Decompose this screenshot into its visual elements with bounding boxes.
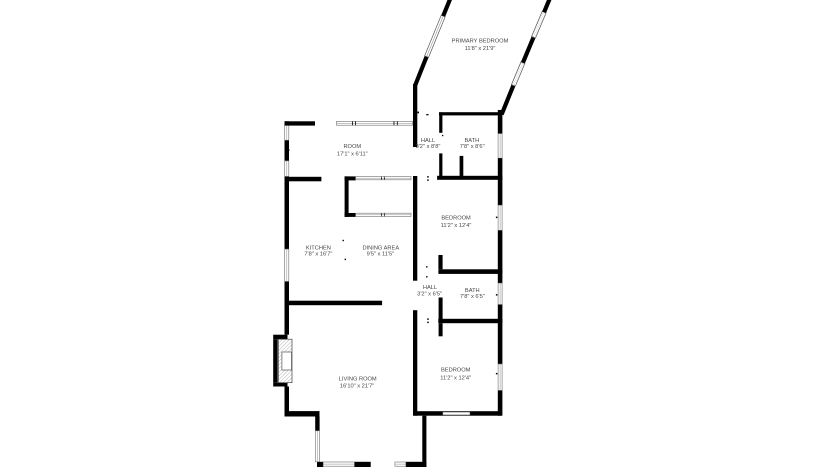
svg-text:KITCHEN: KITCHEN [306, 245, 331, 251]
svg-text:11'8" x 21'9": 11'8" x 21'9" [465, 46, 496, 52]
svg-text:BATH: BATH [465, 138, 480, 144]
svg-text:7'8" x 6'5": 7'8" x 6'5" [460, 294, 485, 300]
svg-text:7'8" x 8'6": 7'8" x 8'6" [460, 144, 485, 150]
svg-text:9'5" x 11'5": 9'5" x 11'5" [367, 252, 395, 258]
svg-text:HALL: HALL [423, 285, 437, 291]
svg-text:11'2" x 12'4": 11'2" x 12'4" [441, 223, 472, 229]
svg-text:3'2" x 6'5": 3'2" x 6'5" [417, 291, 442, 297]
svg-text:BATH: BATH [465, 288, 480, 294]
svg-text:7'8" x 16'7": 7'8" x 16'7" [304, 252, 332, 258]
svg-text:BEDROOM: BEDROOM [441, 367, 471, 373]
svg-text:16'10" x 21'7": 16'10" x 21'7" [340, 383, 374, 389]
svg-text:3'2" x 8'8": 3'2" x 8'8" [416, 144, 441, 150]
svg-text:HALL: HALL [421, 138, 435, 144]
svg-text:ROOM: ROOM [343, 144, 361, 150]
svg-text:BEDROOM: BEDROOM [441, 216, 471, 222]
svg-text:PRIMARY BEDROOM: PRIMARY BEDROOM [452, 39, 509, 45]
svg-text:17'1" x 6'11": 17'1" x 6'11" [337, 151, 368, 157]
svg-text:LIVING ROOM: LIVING ROOM [339, 376, 377, 382]
svg-text:11'2" x 12'4": 11'2" x 12'4" [440, 376, 471, 382]
svg-text:DINING AREA: DINING AREA [362, 245, 399, 251]
